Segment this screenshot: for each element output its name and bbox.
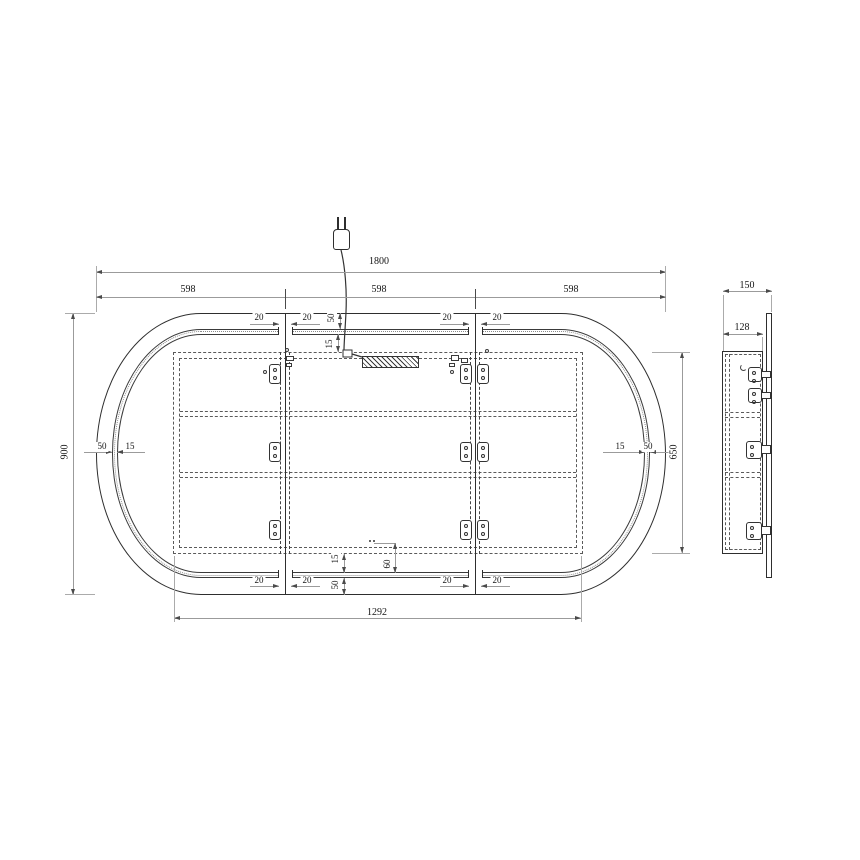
hinge-icon (746, 441, 762, 459)
band-end-tick (482, 327, 483, 335)
dim-line (440, 586, 469, 587)
dim-label-led-inset: 15 (124, 442, 137, 452)
dim-line (395, 543, 396, 573)
extension-line (581, 556, 582, 622)
shelf-hidden-line (180, 472, 576, 473)
mounting-plate-icon (461, 358, 468, 363)
hinge-icon (269, 442, 281, 462)
screw-icon (485, 349, 489, 353)
extension-line (65, 594, 95, 595)
band-end-tick (278, 327, 279, 335)
dim-label-overall-width: 1800 (367, 256, 391, 267)
dim-line (440, 324, 469, 325)
dim-label-overall-height: 900 (60, 443, 71, 462)
band-end-tick (292, 327, 293, 335)
band-end-tick (278, 570, 279, 578)
dim-label-led-inset: 15 (331, 553, 341, 566)
extension-line (65, 313, 95, 314)
band-end-tick (482, 570, 483, 578)
side-hidden-line (725, 412, 760, 413)
dim-tick (475, 289, 476, 309)
dim-line (291, 586, 320, 587)
dim-line (344, 554, 345, 573)
side-hidden-line (729, 354, 730, 550)
dim-line (96, 272, 666, 273)
dim-label-led-inset: 15 (325, 338, 335, 351)
band-end-tick (292, 570, 293, 578)
dim-line (338, 334, 339, 352)
dim-label-door-gap: 20 (491, 313, 504, 323)
dim-label-door-gap: 20 (253, 313, 266, 323)
extension-line (96, 266, 97, 312)
dim-line (340, 313, 341, 329)
dim-line (603, 452, 645, 453)
dim-line (481, 324, 510, 325)
extension-line (771, 295, 772, 312)
technical-drawing-canvas: 60 1800 598 598 598 900 1292 650 20 20 (0, 0, 860, 860)
shelf-hidden-line (180, 477, 576, 478)
dim-line (723, 291, 772, 292)
dim-line (174, 618, 581, 619)
shelf-hidden-line (180, 411, 576, 412)
hinge-icon (477, 520, 489, 540)
dim-line (481, 586, 510, 587)
dim-label-overall-depth: 150 (738, 280, 757, 291)
band-end-tick (468, 570, 469, 578)
dim-label-frame-band: 50 (96, 442, 109, 452)
band-end-tick (468, 327, 469, 335)
sensor-mark (373, 540, 375, 542)
mounting-plate-icon (286, 363, 292, 367)
dim-line (250, 324, 279, 325)
dim-label-sensor-offset: 60 (383, 558, 393, 571)
dim-label-led-inset: 15 (614, 442, 627, 452)
hinge-icon (269, 520, 281, 540)
hinge-icon (477, 442, 489, 462)
dim-line (96, 297, 666, 298)
dim-line (73, 313, 74, 595)
dim-label-door-gap: 20 (301, 313, 314, 323)
dim-label-door-gap: 20 (301, 576, 314, 586)
extension-line (652, 553, 690, 554)
led-driver-box (362, 356, 419, 368)
dim-label-frame-band: 50 (642, 442, 655, 452)
hinge-icon (477, 364, 489, 384)
dim-label-cabinet-height: 650 (669, 443, 680, 462)
hinge-icon (460, 364, 472, 384)
mounting-plate-icon (449, 363, 455, 367)
dim-label-frame-band: 50 (331, 579, 341, 592)
dim-label-cabinet-width: 1292 (365, 607, 389, 618)
screw-icon (263, 370, 267, 374)
shelf-hidden-line (180, 416, 576, 417)
dim-label-frame-band: 50 (327, 312, 337, 325)
dim-label-door-gap: 20 (441, 576, 454, 586)
extension-line (652, 352, 690, 353)
screw-icon (285, 348, 289, 352)
extension-line (762, 337, 763, 351)
cabinet-body-inner-outline (179, 358, 577, 548)
screw-icon (450, 370, 454, 374)
side-hidden-line (725, 472, 760, 473)
extension-line (665, 266, 666, 312)
dim-line (117, 452, 145, 453)
dim-line (84, 452, 112, 453)
extension-line (723, 295, 724, 351)
dim-label-panel-width: 598 (562, 284, 581, 295)
extension-line (174, 556, 175, 622)
door-split-line-right (475, 314, 476, 594)
hinge-hook-icon (740, 364, 747, 371)
mounting-plate-icon (451, 355, 459, 361)
dim-line (723, 334, 763, 335)
hinge-icon (460, 520, 472, 540)
sensor-mark (369, 540, 371, 542)
dim-line (250, 586, 279, 587)
mounting-plate-icon (286, 356, 294, 361)
hinge-icon (748, 367, 762, 382)
hinge-icon (746, 522, 762, 540)
dim-line (344, 578, 345, 595)
dim-label-door-gap: 20 (253, 576, 266, 586)
dim-label-panel-width: 598 (179, 284, 198, 295)
dim-line (291, 324, 320, 325)
side-hidden-line (725, 477, 760, 478)
dim-line (682, 352, 683, 553)
side-hidden-line (725, 417, 760, 418)
power-plug-icon (333, 229, 350, 250)
dim-tick (285, 289, 286, 309)
hinge-icon (269, 364, 281, 384)
hinge-icon (460, 442, 472, 462)
partition-hidden-line (289, 352, 290, 554)
dim-label-door-gap: 20 (491, 576, 504, 586)
dim-label-panel-width: 598 (370, 284, 389, 295)
dim-label-door-gap: 20 (441, 313, 454, 323)
hinge-icon (748, 388, 762, 403)
dim-label-cabinet-depth: 128 (733, 322, 752, 333)
